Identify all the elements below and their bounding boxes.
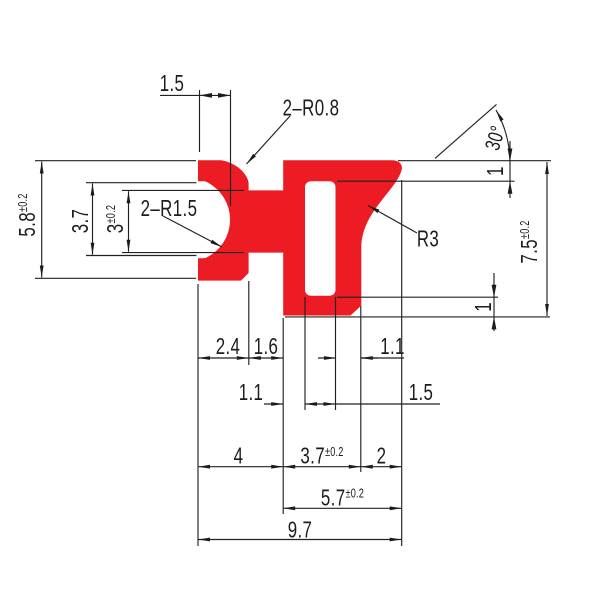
svg-text:2.4: 2.4 xyxy=(216,335,241,360)
svg-text:9.7: 9.7 xyxy=(288,518,313,543)
svg-text:5.7±0.2: 5.7±0.2 xyxy=(321,486,364,511)
svg-text:R3: R3 xyxy=(417,227,439,252)
svg-text:1.1: 1.1 xyxy=(380,335,405,360)
svg-text:2–R0.8: 2–R0.8 xyxy=(283,96,340,121)
svg-text:2: 2 xyxy=(377,444,387,469)
svg-text:1.6: 1.6 xyxy=(254,335,279,360)
svg-text:30°: 30° xyxy=(480,123,510,153)
svg-text:5.8±0.2: 5.8±0.2 xyxy=(16,193,41,236)
svg-text:1.5: 1.5 xyxy=(160,72,185,97)
svg-text:7.5±0.2: 7.5±0.2 xyxy=(518,220,543,263)
svg-text:3.7: 3.7 xyxy=(69,209,94,234)
svg-text:4: 4 xyxy=(234,444,244,469)
svg-text:1.1: 1.1 xyxy=(239,381,264,406)
svg-text:3±0.2: 3±0.2 xyxy=(104,205,129,233)
svg-text:1: 1 xyxy=(484,167,509,176)
svg-text:2–R1.5: 2–R1.5 xyxy=(141,197,198,222)
svg-text:3.7±0.2: 3.7±0.2 xyxy=(300,444,343,469)
svg-text:1: 1 xyxy=(472,302,497,311)
svg-text:1.5: 1.5 xyxy=(409,381,434,406)
